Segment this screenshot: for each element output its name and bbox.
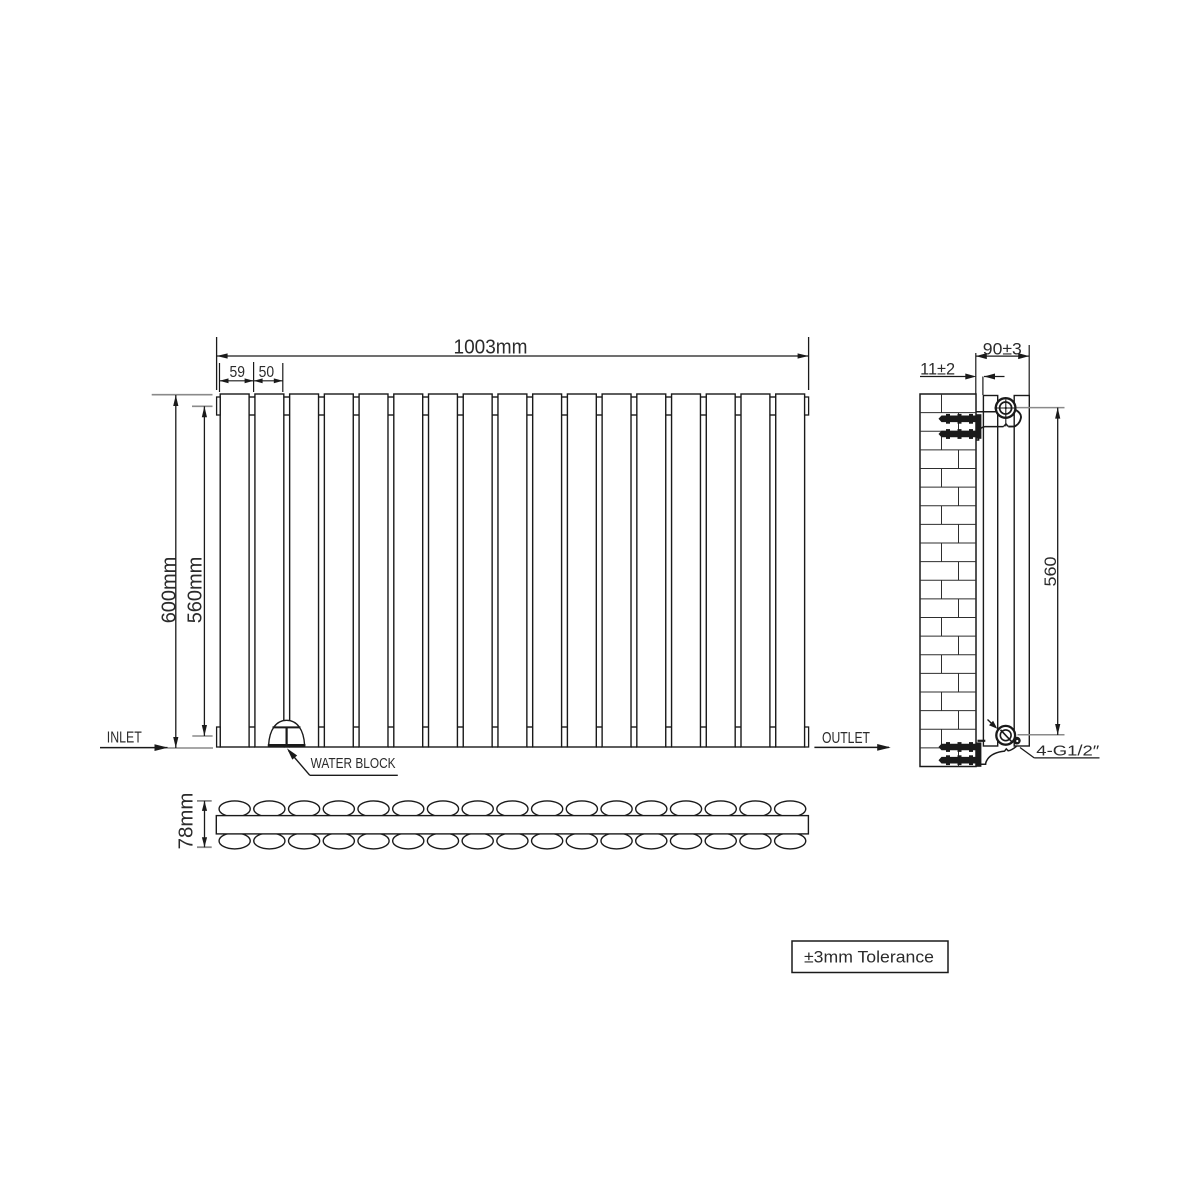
svg-text:INLET: INLET: [107, 730, 142, 747]
svg-text:50: 50: [259, 364, 275, 381]
svg-text:600mm: 600mm: [158, 557, 180, 624]
svg-text:78mm: 78mm: [175, 793, 197, 850]
svg-text:WATER BLOCK: WATER BLOCK: [311, 755, 396, 772]
svg-text:OUTLET: OUTLET: [822, 730, 870, 747]
svg-text:4-G1/2″: 4-G1/2″: [1036, 744, 1099, 760]
svg-text:±3mm Tolerance: ±3mm Tolerance: [804, 948, 934, 967]
svg-text:560mm: 560mm: [184, 557, 206, 624]
svg-text:11±2: 11±2: [920, 361, 955, 379]
svg-text:59: 59: [229, 364, 245, 381]
svg-text:90±3: 90±3: [983, 340, 1022, 358]
svg-text:560: 560: [1041, 557, 1060, 587]
svg-text:1003mm: 1003mm: [454, 336, 528, 359]
